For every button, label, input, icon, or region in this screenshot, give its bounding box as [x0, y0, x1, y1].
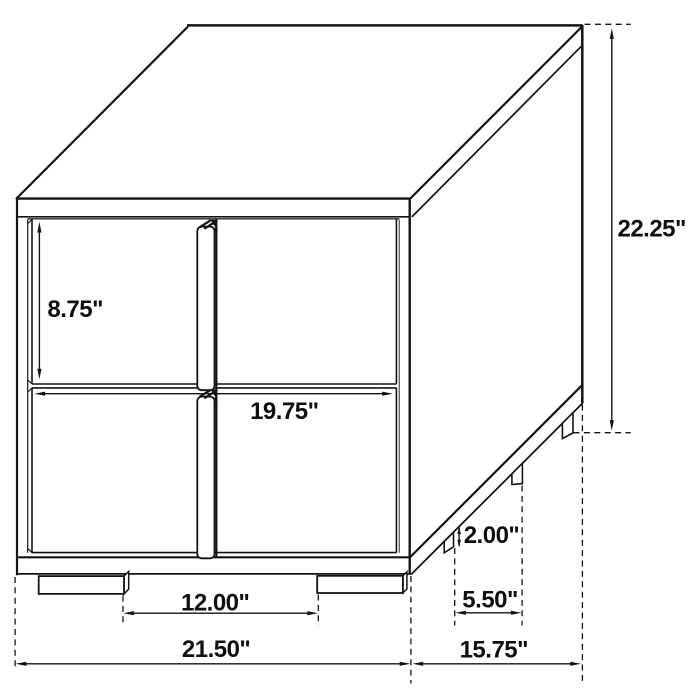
svg-text:12.00": 12.00" [181, 589, 249, 616]
svg-text:8.75": 8.75" [47, 296, 103, 323]
svg-text:21.50": 21.50" [182, 636, 250, 663]
svg-text:15.75": 15.75" [460, 637, 528, 664]
svg-text:5.50": 5.50" [462, 587, 518, 614]
svg-text:2.00": 2.00" [464, 522, 520, 549]
svg-text:22.25": 22.25" [617, 215, 685, 242]
svg-text:19.75": 19.75" [250, 398, 318, 425]
